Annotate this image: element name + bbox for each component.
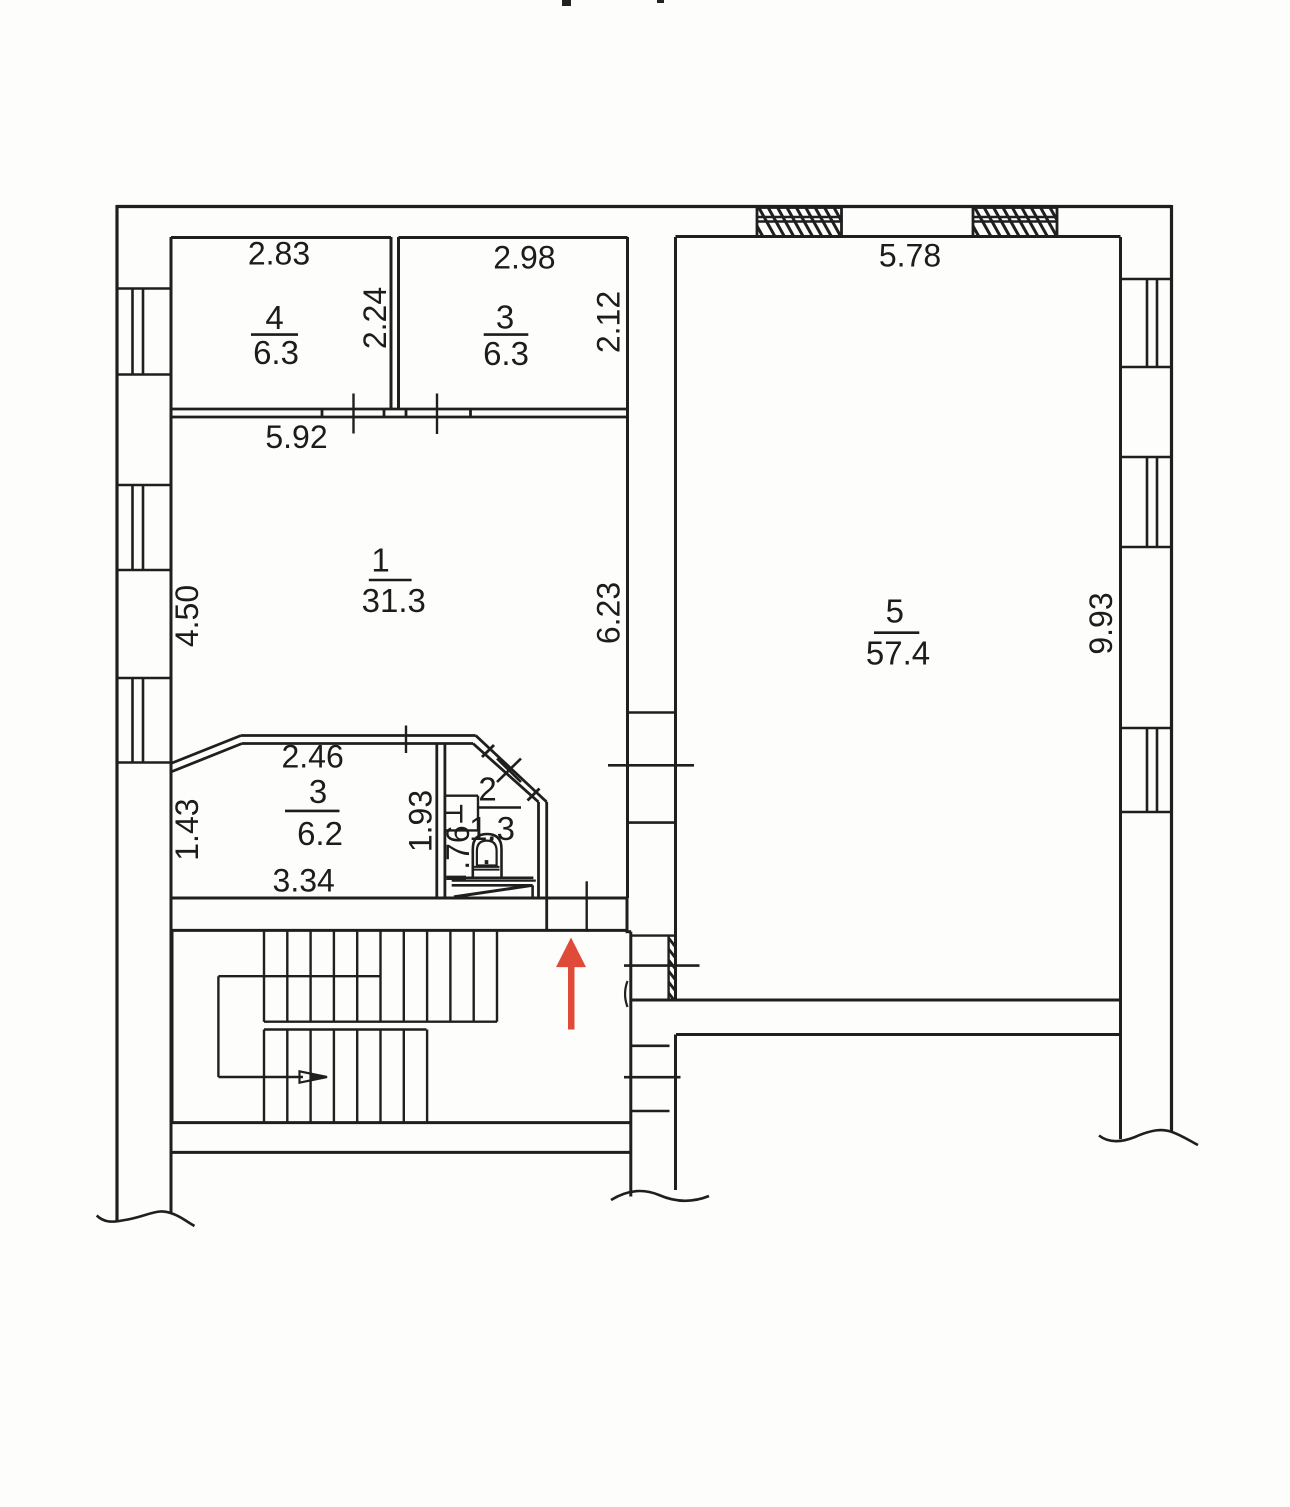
svg-text:2.83: 2.83	[248, 236, 310, 272]
svg-text:1.43: 1.43	[169, 798, 205, 860]
svg-text:2.46: 2.46	[281, 739, 343, 775]
svg-text:5.92: 5.92	[265, 419, 327, 455]
svg-text:6.3: 6.3	[483, 335, 529, 372]
svg-text:2: 2	[478, 771, 496, 808]
svg-text:31.3: 31.3	[362, 582, 426, 619]
svg-text:57.4: 57.4	[866, 635, 930, 672]
svg-text:6.3: 6.3	[253, 334, 299, 371]
svg-text:2.24: 2.24	[357, 287, 393, 349]
svg-text:3: 3	[496, 299, 514, 336]
svg-text:9.93: 9.93	[1083, 592, 1119, 654]
svg-text:2.12: 2.12	[591, 291, 627, 353]
svg-text:4: 4	[265, 299, 283, 336]
svg-text:3: 3	[309, 773, 327, 810]
svg-text:6.23: 6.23	[591, 582, 627, 644]
svg-text:3.34: 3.34	[273, 863, 335, 899]
svg-text:1.3: 1.3	[469, 810, 515, 847]
svg-text:5: 5	[886, 593, 904, 630]
svg-text:1.93: 1.93	[403, 790, 439, 852]
svg-text:5.78: 5.78	[879, 238, 941, 274]
svg-text:4.50: 4.50	[169, 585, 205, 647]
svg-text:1: 1	[371, 542, 389, 579]
svg-text:2.98: 2.98	[493, 240, 555, 276]
svg-text:6.2: 6.2	[297, 815, 343, 852]
